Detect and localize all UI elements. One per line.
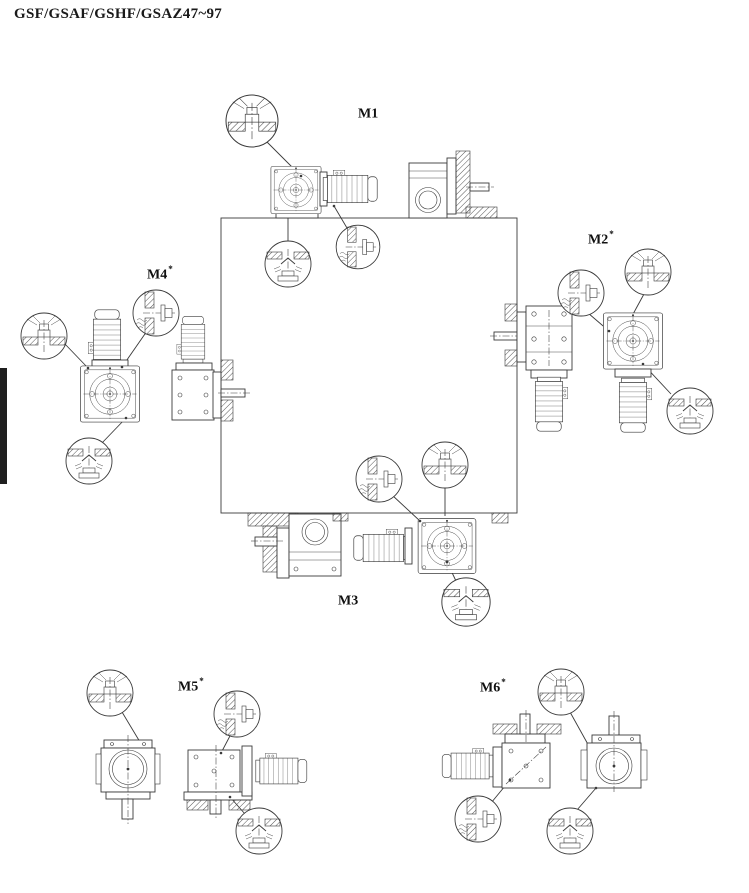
m2-drain-plug-icon <box>667 388 713 434</box>
catalog-page: GSF/GSAF/GSHF/GSAZ47~97 <box>0 0 749 893</box>
m4-front-view <box>80 310 139 422</box>
m3-level-plug-icon <box>356 456 402 502</box>
wall-hatch <box>505 304 517 321</box>
m4-level-plug-icon <box>133 290 179 336</box>
m5-front-view <box>96 735 160 824</box>
m1-vent-plug-icon <box>226 95 278 147</box>
m4-drain-plug-icon <box>66 438 112 484</box>
m1-level-plug-icon <box>336 225 380 269</box>
m5-drain-plug-icon <box>236 808 282 854</box>
position-label-m1: M1 <box>358 104 378 123</box>
m3-front-view <box>333 513 508 573</box>
floor-hatch <box>187 800 208 810</box>
m3-vent-plug-icon <box>422 442 468 488</box>
position-label-m2: M2* <box>588 230 613 249</box>
m3-drain-plug-icon <box>442 578 490 626</box>
m2-side-view <box>490 304 572 431</box>
m3-side-view <box>248 513 341 578</box>
position-label-m6: M6* <box>480 678 505 697</box>
m5-level-plug-icon <box>214 691 260 737</box>
ceiling-hatch <box>537 724 561 734</box>
position-label-m4: M4* <box>147 265 172 284</box>
m6-level-plug-icon <box>455 796 501 842</box>
m1-drain-plug-icon <box>265 241 311 287</box>
m5-side-view <box>184 745 307 818</box>
m6-drain-plug-icon <box>547 808 593 854</box>
wall-hatch <box>221 360 233 380</box>
m6-vent-plug-icon <box>538 669 584 715</box>
wall-hatch <box>221 400 233 421</box>
position-label-m5: M5* <box>178 677 203 696</box>
wall-bracket-hatch <box>456 151 470 213</box>
m4-side-view <box>172 316 250 421</box>
floor-hatch <box>229 800 250 810</box>
m4-vent-plug-icon <box>21 313 67 359</box>
ceiling-hatch <box>493 724 517 734</box>
m6-side-view <box>442 710 561 788</box>
mounting-positions-diagram <box>0 0 749 893</box>
m2-vent-plug-icon <box>625 249 671 295</box>
m2-level-plug-icon <box>558 270 604 316</box>
m6-front-view <box>581 711 647 792</box>
m5-vent-plug-icon <box>87 670 133 716</box>
m1-front-view <box>271 166 377 218</box>
wall-hatch <box>505 350 517 366</box>
position-label-m3: M3 <box>338 591 358 610</box>
m2-front-view <box>603 313 662 432</box>
m1-side-view <box>409 151 497 218</box>
